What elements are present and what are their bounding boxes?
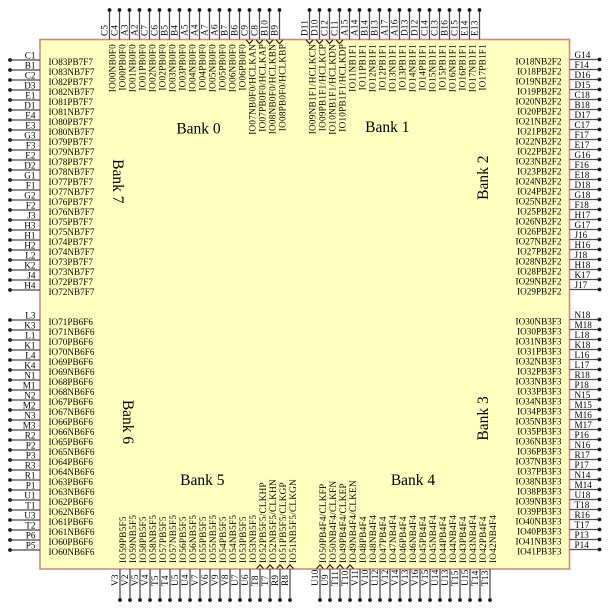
svg-text:G3: G3 bbox=[24, 131, 36, 141]
svg-text:D10: D10 bbox=[310, 19, 320, 36]
svg-text:C13: C13 bbox=[430, 20, 440, 36]
svg-text:IO71NB6F6: IO71NB6F6 bbox=[49, 327, 95, 337]
svg-text:V4: V4 bbox=[140, 574, 150, 586]
svg-text:IO04PB0F0: IO04PB0F0 bbox=[198, 44, 208, 91]
svg-text:IO56NB5F5: IO56NB5F5 bbox=[188, 515, 198, 563]
svg-text:IO80PB7F7: IO80PB7F7 bbox=[49, 117, 94, 127]
svg-text:V6: V6 bbox=[200, 574, 210, 586]
svg-text:T8: T8 bbox=[250, 575, 260, 586]
svg-text:IO52PB5F5/CLKHP: IO52PB5F5/CLKHP bbox=[258, 482, 268, 563]
svg-text:B1: B1 bbox=[25, 61, 36, 71]
svg-text:U3: U3 bbox=[24, 511, 36, 521]
svg-text:IO43PB4F4: IO43PB4F4 bbox=[458, 516, 468, 563]
svg-text:M18: M18 bbox=[575, 320, 593, 330]
svg-text:IO01NB0F0: IO01NB0F0 bbox=[128, 44, 138, 92]
svg-text:IO70NB6F6: IO70NB6F6 bbox=[49, 347, 95, 357]
svg-text:IO78PB7F7: IO78PB7F7 bbox=[49, 157, 94, 167]
svg-text:IO73NB7F7: IO73NB7F7 bbox=[49, 267, 95, 277]
svg-text:E1: E1 bbox=[25, 91, 36, 101]
svg-text:D17: D17 bbox=[575, 110, 591, 120]
svg-text:IO48PB4F4: IO48PB4F4 bbox=[358, 516, 368, 563]
svg-text:B9: B9 bbox=[270, 25, 280, 36]
svg-text:IO34NB3F3: IO34NB3F3 bbox=[516, 397, 562, 407]
svg-text:IO54PB5F5: IO54PB5F5 bbox=[218, 516, 228, 563]
svg-text:IO69PB6F6: IO69PB6F6 bbox=[49, 357, 94, 367]
svg-text:M16: M16 bbox=[575, 410, 593, 420]
svg-text:IO35NB3F3: IO35NB3F3 bbox=[516, 417, 562, 427]
svg-text:IO47PB4F4: IO47PB4F4 bbox=[378, 516, 388, 563]
svg-text:T15: T15 bbox=[450, 570, 460, 586]
svg-text:C15: C15 bbox=[450, 20, 460, 36]
svg-text:IO31PB3F3: IO31PB3F3 bbox=[517, 347, 562, 357]
svg-text:IO23NB2F2: IO23NB2F2 bbox=[516, 157, 562, 167]
svg-text:IO32NB3F3: IO32NB3F3 bbox=[516, 357, 562, 367]
svg-text:D1: D1 bbox=[24, 101, 36, 111]
svg-text:B4: B4 bbox=[170, 25, 180, 36]
svg-text:F14: F14 bbox=[575, 60, 590, 70]
svg-text:IO68NB6F6: IO68NB6F6 bbox=[49, 387, 95, 397]
svg-text:IO62NB6F6: IO62NB6F6 bbox=[49, 507, 95, 517]
svg-text:IO47NB4F4: IO47NB4F4 bbox=[388, 515, 398, 563]
svg-text:IO07PB0F0/HCLKAP: IO07PB0F0/HCLKAP bbox=[258, 44, 268, 132]
svg-text:G14: G14 bbox=[575, 50, 591, 60]
svg-text:P1: P1 bbox=[26, 481, 36, 491]
svg-text:C9: C9 bbox=[240, 25, 250, 36]
svg-text:IO20NB2F2: IO20NB2F2 bbox=[516, 97, 562, 107]
svg-text:U9: U9 bbox=[320, 574, 330, 586]
svg-text:IO13NB1F1: IO13NB1F1 bbox=[388, 44, 398, 92]
svg-text:IO36PB3F3: IO36PB3F3 bbox=[517, 447, 562, 457]
svg-text:IO29NB2F2: IO29NB2F2 bbox=[516, 277, 562, 287]
svg-text:P18: P18 bbox=[575, 380, 590, 390]
svg-text:IO51PB5F5/CLKGP: IO51PB5F5/CLKGP bbox=[278, 482, 288, 563]
svg-text:U13: U13 bbox=[440, 569, 450, 586]
svg-text:J4: J4 bbox=[27, 271, 36, 281]
svg-text:IO44PB4F4: IO44PB4F4 bbox=[438, 516, 448, 563]
svg-text:IO41NB3F3: IO41NB3F3 bbox=[516, 537, 562, 547]
svg-text:D12: D12 bbox=[410, 19, 420, 36]
svg-text:IO28NB2F2: IO28NB2F2 bbox=[516, 257, 562, 267]
svg-text:C12: C12 bbox=[320, 20, 330, 36]
svg-text:V12: V12 bbox=[380, 569, 390, 586]
svg-text:IO40PB3F3: IO40PB3F3 bbox=[517, 527, 562, 537]
svg-text:N18: N18 bbox=[575, 310, 591, 320]
svg-text:IO63NB6F6: IO63NB6F6 bbox=[49, 487, 95, 497]
svg-text:A5: A5 bbox=[180, 24, 190, 36]
svg-text:F1: F1 bbox=[26, 181, 36, 191]
svg-text:C14: C14 bbox=[420, 20, 430, 36]
svg-text:B10: B10 bbox=[260, 20, 270, 36]
svg-text:N1: N1 bbox=[24, 371, 36, 381]
svg-text:IO08NB0F0/HCLKBN: IO08NB0F0/HCLKBN bbox=[268, 44, 278, 134]
svg-text:T2: T2 bbox=[25, 521, 36, 531]
svg-text:IO76NB7F7: IO76NB7F7 bbox=[49, 207, 95, 217]
svg-text:IO17PB1F1: IO17PB1F1 bbox=[478, 44, 488, 91]
svg-text:IO30PB3F3: IO30PB3F3 bbox=[517, 327, 562, 337]
svg-text:IO13PB1F1: IO13PB1F1 bbox=[398, 44, 408, 91]
svg-text:IO58PB5F5: IO58PB5F5 bbox=[138, 516, 148, 563]
svg-text:H2: H2 bbox=[24, 241, 36, 251]
svg-text:U15: U15 bbox=[460, 569, 470, 586]
svg-text:A14: A14 bbox=[350, 19, 360, 36]
svg-text:C17: C17 bbox=[575, 120, 591, 130]
svg-text:T4: T4 bbox=[160, 575, 170, 586]
svg-text:IO77PB7F7: IO77PB7F7 bbox=[49, 177, 94, 187]
svg-text:E13: E13 bbox=[470, 20, 480, 36]
svg-text:IO60PB6F6: IO60PB6F6 bbox=[49, 537, 94, 547]
svg-text:T10: T10 bbox=[340, 570, 350, 586]
svg-text:IO83PB7F7: IO83PB7F7 bbox=[49, 57, 94, 67]
svg-text:IO59PB5F5: IO59PB5F5 bbox=[118, 516, 128, 563]
svg-text:T7: T7 bbox=[260, 575, 270, 586]
svg-text:F3: F3 bbox=[26, 141, 36, 151]
svg-text:IO71PB6F6: IO71PB6F6 bbox=[49, 317, 94, 327]
svg-text:IO44NB4F4: IO44NB4F4 bbox=[448, 515, 458, 563]
svg-text:IO48NB4F4: IO48NB4F4 bbox=[368, 515, 378, 563]
svg-text:E3: E3 bbox=[25, 121, 36, 131]
svg-text:U18: U18 bbox=[575, 490, 591, 500]
svg-text:H16: H16 bbox=[575, 240, 591, 250]
svg-text:IO15NB1F1: IO15NB1F1 bbox=[428, 44, 438, 92]
svg-text:B5: B5 bbox=[160, 25, 170, 36]
svg-text:V13: V13 bbox=[400, 569, 410, 586]
svg-text:C6: C6 bbox=[150, 25, 160, 36]
svg-text:IO61NB6F6: IO61NB6F6 bbox=[49, 527, 95, 537]
svg-text:IO66NB6F6: IO66NB6F6 bbox=[49, 427, 95, 437]
svg-text:IO57PB5F5: IO57PB5F5 bbox=[158, 516, 168, 563]
svg-text:IO39NB3F3: IO39NB3F3 bbox=[516, 497, 562, 507]
svg-text:IO02PB0F0: IO02PB0F0 bbox=[158, 44, 168, 91]
svg-text:V9: V9 bbox=[210, 574, 220, 586]
svg-text:IO27PB2F2: IO27PB2F2 bbox=[517, 247, 562, 257]
svg-text:IO33NB3F3: IO33NB3F3 bbox=[516, 377, 562, 387]
svg-text:A16: A16 bbox=[390, 19, 400, 36]
svg-text:R1: R1 bbox=[25, 471, 36, 481]
svg-text:IO67PB6F6: IO67PB6F6 bbox=[49, 397, 94, 407]
svg-text:L17: L17 bbox=[575, 360, 590, 370]
svg-text:IO62PB6F6: IO62PB6F6 bbox=[49, 497, 94, 507]
svg-text:IO57NB5F5: IO57NB5F5 bbox=[168, 515, 178, 563]
svg-text:R9: R9 bbox=[270, 575, 280, 586]
svg-text:G1: G1 bbox=[24, 171, 36, 181]
svg-text:IO74PB7F7: IO74PB7F7 bbox=[49, 237, 94, 247]
svg-text:IO49PB4F4/CLKEP: IO49PB4F4/CLKEP bbox=[338, 483, 348, 563]
svg-text:C1: C1 bbox=[25, 51, 36, 61]
svg-text:A2: A2 bbox=[130, 24, 140, 36]
svg-text:IO40NB3F3: IO40NB3F3 bbox=[516, 517, 562, 527]
svg-text:IO54NB5F5: IO54NB5F5 bbox=[228, 515, 238, 563]
svg-text:IO68PB6F6: IO68PB6F6 bbox=[49, 377, 94, 387]
svg-text:A15: A15 bbox=[340, 19, 350, 36]
svg-text:V10: V10 bbox=[360, 569, 370, 586]
svg-text:R3: R3 bbox=[25, 461, 36, 471]
svg-text:IO07NB0F0/HCLKAN: IO07NB0F0/HCLKAN bbox=[248, 44, 258, 135]
svg-text:N15: N15 bbox=[575, 390, 591, 400]
svg-text:P3: P3 bbox=[26, 451, 36, 461]
svg-text:C8: C8 bbox=[250, 25, 260, 36]
svg-text:IO24NB2F2: IO24NB2F2 bbox=[516, 177, 562, 187]
svg-text:IO79NB7F7: IO79NB7F7 bbox=[49, 147, 95, 157]
svg-text:G17: G17 bbox=[575, 220, 591, 230]
svg-text:IO32PB3F3: IO32PB3F3 bbox=[517, 367, 562, 377]
svg-text:N16: N16 bbox=[575, 440, 591, 450]
svg-text:IO03PB0F0: IO03PB0F0 bbox=[178, 44, 188, 91]
svg-text:IO69NB6F6: IO69NB6F6 bbox=[49, 367, 95, 377]
svg-text:H18: H18 bbox=[575, 260, 591, 270]
svg-text:G2: G2 bbox=[24, 191, 36, 201]
svg-text:IO03NB0F0: IO03NB0F0 bbox=[168, 44, 178, 92]
svg-text:R8: R8 bbox=[280, 575, 290, 586]
svg-text:IO39PB3F3: IO39PB3F3 bbox=[517, 507, 562, 517]
svg-text:U1: U1 bbox=[24, 491, 36, 501]
svg-text:M3: M3 bbox=[23, 421, 36, 431]
svg-text:IO46NB4F4: IO46NB4F4 bbox=[408, 515, 418, 563]
svg-text:IO80NB7F7: IO80NB7F7 bbox=[49, 127, 95, 137]
svg-text:IO00NB0F0: IO00NB0F0 bbox=[108, 44, 118, 92]
svg-text:B13: B13 bbox=[370, 20, 380, 36]
svg-text:IO66PB6F6: IO66PB6F6 bbox=[49, 417, 94, 427]
svg-text:IO21NB2F2: IO21NB2F2 bbox=[516, 117, 562, 127]
svg-text:P16: P16 bbox=[575, 430, 590, 440]
svg-text:IO78NB7F7: IO78NB7F7 bbox=[49, 167, 95, 177]
svg-text:V7: V7 bbox=[190, 574, 200, 586]
svg-text:U6: U6 bbox=[240, 574, 250, 586]
svg-text:D2: D2 bbox=[24, 161, 36, 171]
svg-text:M15: M15 bbox=[575, 400, 593, 410]
svg-text:R17: R17 bbox=[575, 450, 591, 460]
svg-text:IO01PB0F0: IO01PB0F0 bbox=[138, 44, 148, 91]
svg-text:J16: J16 bbox=[575, 230, 588, 240]
svg-text:B6: B6 bbox=[230, 25, 240, 36]
svg-text:B14: B14 bbox=[360, 20, 370, 36]
svg-text:IO22NB2F2: IO22NB2F2 bbox=[516, 137, 562, 147]
svg-text:IO29PB2F2: IO29PB2F2 bbox=[517, 287, 562, 297]
svg-text:IO76PB7F7: IO76PB7F7 bbox=[49, 197, 94, 207]
svg-text:M2: M2 bbox=[23, 401, 36, 411]
svg-text:IO72NB7F7: IO72NB7F7 bbox=[49, 287, 95, 297]
svg-text:IO65NB6F6: IO65NB6F6 bbox=[49, 447, 95, 457]
svg-text:IO02NB0F0: IO02NB0F0 bbox=[148, 44, 158, 92]
svg-text:IO64PB6F6: IO64PB6F6 bbox=[49, 457, 94, 467]
svg-text:IO18NB2F2: IO18NB2F2 bbox=[516, 57, 562, 67]
svg-text:IO22PB2F2: IO22PB2F2 bbox=[517, 147, 562, 157]
svg-text:IO53PB5F5: IO53PB5F5 bbox=[238, 516, 248, 563]
svg-text:N3: N3 bbox=[24, 411, 36, 421]
svg-text:A17: A17 bbox=[380, 19, 390, 36]
svg-text:IO50PB4F4/CLKFP: IO50PB4F4/CLKFP bbox=[318, 484, 328, 563]
svg-text:F2: F2 bbox=[26, 201, 36, 211]
svg-text:J3: J3 bbox=[27, 211, 36, 221]
svg-text:L2: L2 bbox=[25, 251, 36, 261]
svg-text:IO58NB5F5: IO58NB5F5 bbox=[148, 515, 158, 563]
svg-text:IO33PB3F3: IO33PB3F3 bbox=[517, 387, 562, 397]
svg-text:U7: U7 bbox=[230, 574, 240, 586]
svg-text:U10: U10 bbox=[310, 569, 320, 586]
svg-text:H3: H3 bbox=[24, 221, 36, 231]
svg-text:IO63PB6F6: IO63PB6F6 bbox=[49, 477, 94, 487]
svg-text:IO36NB3F3: IO36NB3F3 bbox=[516, 437, 562, 447]
svg-text:E18: E18 bbox=[575, 170, 590, 180]
svg-text:V3: V3 bbox=[110, 574, 120, 586]
svg-text:IO34PB3F3: IO34PB3F3 bbox=[517, 407, 562, 417]
svg-text:IO83NB7F7: IO83NB7F7 bbox=[49, 67, 95, 77]
svg-text:IO06NB0F0: IO06NB0F0 bbox=[228, 44, 238, 92]
svg-text:Bank 5: Bank 5 bbox=[180, 472, 225, 489]
svg-text:Bank 0: Bank 0 bbox=[176, 121, 221, 138]
svg-text:H17: H17 bbox=[575, 210, 591, 220]
svg-text:IO45NB4F4: IO45NB4F4 bbox=[428, 515, 438, 563]
svg-text:F16: F16 bbox=[575, 160, 590, 170]
svg-text:IO00PB0F0: IO00PB0F0 bbox=[118, 44, 128, 91]
svg-text:IO08PB0F0/HCLKBP: IO08PB0F0/HCLKBP bbox=[278, 44, 288, 131]
svg-text:IO81NB7F7: IO81NB7F7 bbox=[49, 107, 95, 117]
svg-text:IO05PB0F0: IO05PB0F0 bbox=[218, 44, 228, 91]
svg-text:V14: V14 bbox=[390, 569, 400, 586]
svg-text:K18: K18 bbox=[575, 340, 591, 350]
svg-text:H4: H4 bbox=[24, 281, 36, 291]
svg-text:E4: E4 bbox=[25, 111, 36, 121]
svg-text:IO55PB5F5: IO55PB5F5 bbox=[198, 516, 208, 563]
svg-text:V16: V16 bbox=[410, 569, 420, 586]
svg-text:IO20PB2F2: IO20PB2F2 bbox=[517, 107, 562, 117]
svg-text:N14: N14 bbox=[575, 470, 591, 480]
svg-text:IO28PB2F2: IO28PB2F2 bbox=[517, 267, 562, 277]
svg-text:IO45PB4F4: IO45PB4F4 bbox=[418, 516, 428, 563]
svg-text:K17: K17 bbox=[575, 270, 591, 280]
svg-text:IO10PB1F1/HCLKDP: IO10PB1F1/HCLKDP bbox=[338, 44, 348, 132]
svg-text:K4: K4 bbox=[24, 361, 36, 371]
svg-text:K1: K1 bbox=[24, 341, 36, 351]
svg-text:B16: B16 bbox=[440, 20, 450, 36]
svg-text:P17: P17 bbox=[575, 460, 590, 470]
svg-text:Bank 6: Bank 6 bbox=[119, 400, 136, 445]
svg-text:M17: M17 bbox=[575, 420, 593, 430]
svg-text:IO42NB4F4: IO42NB4F4 bbox=[488, 515, 498, 563]
svg-text:IO38PB3F3: IO38PB3F3 bbox=[517, 487, 562, 497]
svg-text:T14: T14 bbox=[470, 570, 480, 586]
svg-text:P2: P2 bbox=[26, 441, 36, 451]
svg-text:IO31NB3F3: IO31NB3F3 bbox=[516, 337, 562, 347]
svg-text:C2: C2 bbox=[25, 71, 36, 81]
svg-text:R16: R16 bbox=[575, 510, 591, 520]
svg-text:IO24PB2F2: IO24PB2F2 bbox=[517, 187, 562, 197]
svg-text:B7: B7 bbox=[220, 25, 230, 36]
svg-text:F18: F18 bbox=[575, 200, 590, 210]
svg-text:IO05NB0F0: IO05NB0F0 bbox=[208, 44, 218, 92]
svg-text:IO75NB7F7: IO75NB7F7 bbox=[49, 227, 95, 237]
svg-text:U4: U4 bbox=[180, 574, 190, 586]
svg-text:T1: T1 bbox=[25, 501, 36, 511]
svg-text:L4: L4 bbox=[25, 351, 36, 361]
svg-text:IO81PB7F7: IO81PB7F7 bbox=[49, 97, 94, 107]
svg-text:P13: P13 bbox=[575, 530, 590, 540]
svg-text:IO12PB1F1: IO12PB1F1 bbox=[378, 44, 388, 91]
svg-text:R18: R18 bbox=[575, 370, 591, 380]
svg-text:IO26NB2F2: IO26NB2F2 bbox=[516, 217, 562, 227]
svg-text:IO10NB1F1/HCLKDN: IO10NB1F1/HCLKDN bbox=[328, 44, 338, 135]
svg-text:R2: R2 bbox=[25, 431, 36, 441]
svg-text:J18: J18 bbox=[575, 250, 588, 260]
svg-text:IO21PB2F2: IO21PB2F2 bbox=[517, 127, 562, 137]
svg-text:T5: T5 bbox=[150, 575, 160, 586]
svg-text:IO51NB5F5/CLKGN: IO51NB5F5/CLKGN bbox=[288, 479, 298, 563]
svg-text:IO27NB2F2: IO27NB2F2 bbox=[516, 237, 562, 247]
svg-text:V2: V2 bbox=[120, 574, 130, 586]
svg-text:IO61PB6F6: IO61PB6F6 bbox=[49, 517, 94, 527]
svg-text:U5: U5 bbox=[170, 574, 180, 586]
svg-text:IO16NB1F1: IO16NB1F1 bbox=[448, 44, 458, 92]
svg-text:IO16PB1F1: IO16PB1F1 bbox=[458, 44, 468, 91]
svg-text:Bank 4: Bank 4 bbox=[391, 472, 436, 489]
svg-text:IO56PB5F5: IO56PB5F5 bbox=[178, 516, 188, 563]
svg-text:A4: A4 bbox=[190, 24, 200, 36]
svg-text:G16: G16 bbox=[575, 150, 591, 160]
svg-text:IO55NB5F5: IO55NB5F5 bbox=[208, 515, 218, 563]
svg-text:IO25NB2F2: IO25NB2F2 bbox=[516, 197, 562, 207]
svg-text:IO75PB7F7: IO75PB7F7 bbox=[49, 217, 94, 227]
svg-text:V15: V15 bbox=[420, 569, 430, 586]
svg-text:Bank 3: Bank 3 bbox=[475, 396, 492, 441]
svg-text:IO14NB1F1: IO14NB1F1 bbox=[408, 44, 418, 92]
svg-text:A3: A3 bbox=[120, 24, 130, 36]
svg-text:D16: D16 bbox=[575, 70, 591, 80]
svg-text:IO53NB5F5: IO53NB5F5 bbox=[248, 515, 258, 563]
svg-text:IO67NB6F6: IO67NB6F6 bbox=[49, 407, 95, 417]
svg-text:IO43NB4F4: IO43NB4F4 bbox=[468, 515, 478, 563]
svg-text:N2: N2 bbox=[24, 391, 36, 401]
svg-text:IO17NB1F1: IO17NB1F1 bbox=[468, 44, 478, 92]
svg-text:IO06PB0F0: IO06PB0F0 bbox=[238, 44, 248, 91]
svg-text:K2: K2 bbox=[24, 261, 36, 271]
svg-text:T17: T17 bbox=[575, 520, 590, 530]
svg-text:Bank 1: Bank 1 bbox=[365, 119, 409, 136]
svg-text:IO38NB3F3: IO38NB3F3 bbox=[516, 477, 562, 487]
svg-text:L18: L18 bbox=[575, 330, 590, 340]
svg-text:IO15PB1F1: IO15PB1F1 bbox=[438, 44, 448, 91]
svg-text:L16: L16 bbox=[575, 350, 590, 360]
svg-text:H1: H1 bbox=[24, 231, 36, 241]
svg-text:F17: F17 bbox=[575, 130, 590, 140]
svg-text:IO37PB3F3: IO37PB3F3 bbox=[517, 467, 562, 477]
svg-text:Bank 2: Bank 2 bbox=[475, 156, 492, 200]
svg-text:T13: T13 bbox=[480, 570, 490, 586]
svg-text:IO79PB7F7: IO79PB7F7 bbox=[49, 137, 94, 147]
svg-text:C11: C11 bbox=[330, 20, 340, 36]
svg-text:Bank 7: Bank 7 bbox=[109, 159, 126, 204]
svg-text:IO50NB4F4/CLKFN: IO50NB4F4/CLKFN bbox=[328, 481, 338, 563]
svg-text:D3: D3 bbox=[24, 81, 36, 91]
svg-text:D11: D11 bbox=[300, 20, 310, 36]
svg-text:B18: B18 bbox=[575, 100, 591, 110]
svg-text:IO77NB7F7: IO77NB7F7 bbox=[49, 187, 95, 197]
svg-text:A7: A7 bbox=[200, 24, 210, 36]
svg-text:IO09NB1F1/HCLKCN: IO09NB1F1/HCLKCN bbox=[308, 44, 318, 134]
svg-text:L3: L3 bbox=[25, 311, 36, 321]
svg-text:C4: C4 bbox=[110, 25, 120, 36]
svg-text:IO25PB2F2: IO25PB2F2 bbox=[517, 207, 562, 217]
svg-text:IO41PB3F3: IO41PB3F3 bbox=[517, 547, 562, 557]
svg-text:V8: V8 bbox=[220, 574, 230, 586]
svg-text:IO11NB1F1: IO11NB1F1 bbox=[348, 44, 358, 92]
svg-text:J17: J17 bbox=[575, 280, 588, 290]
svg-text:IO46PB4F4: IO46PB4F4 bbox=[398, 516, 408, 563]
svg-text:C5: C5 bbox=[100, 25, 110, 36]
svg-text:IO18PB2F2: IO18PB2F2 bbox=[517, 67, 562, 77]
svg-text:T11: T11 bbox=[330, 571, 340, 586]
svg-text:IO73PB7F7: IO73PB7F7 bbox=[49, 257, 94, 267]
svg-text:V5: V5 bbox=[130, 574, 140, 586]
svg-text:C18: C18 bbox=[575, 90, 591, 100]
